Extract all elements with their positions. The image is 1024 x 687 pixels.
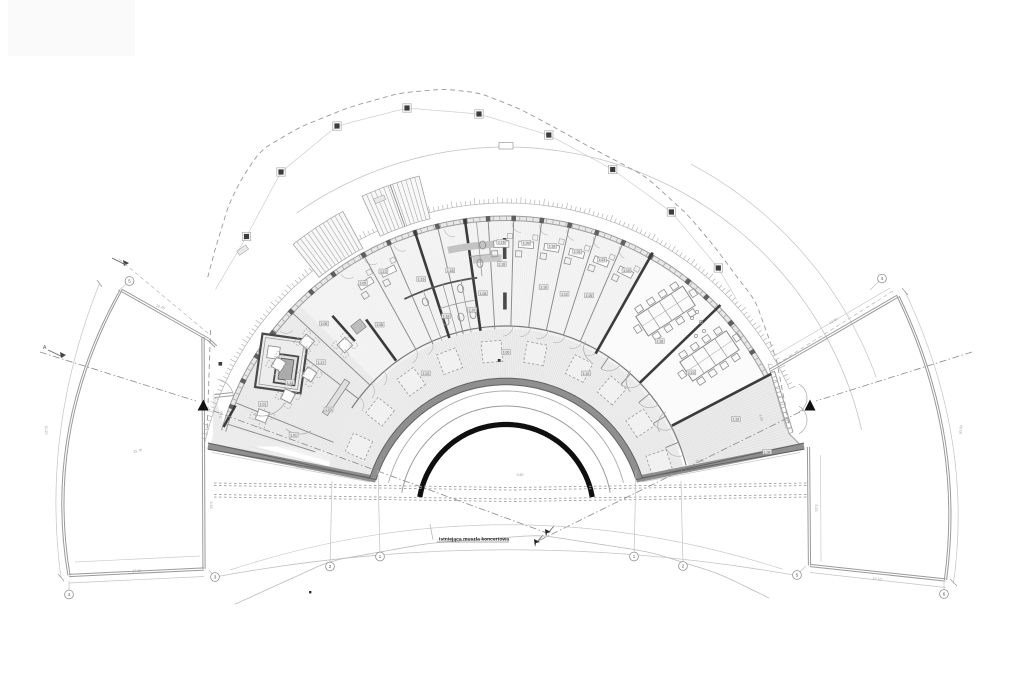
svg-text:1.16: 1.16 bbox=[498, 241, 505, 245]
svg-text:5.45: 5.45 bbox=[209, 502, 213, 509]
svg-text:1.18: 1.18 bbox=[447, 269, 454, 273]
svg-text:1.19: 1.19 bbox=[583, 372, 590, 376]
svg-text:1.05: 1.05 bbox=[360, 282, 367, 286]
svg-text:1.09: 1.09 bbox=[523, 241, 530, 245]
svg-text:1.03: 1.03 bbox=[599, 258, 606, 262]
svg-text:1.16: 1.16 bbox=[549, 245, 556, 249]
svg-text:1.01: 1.01 bbox=[290, 433, 297, 437]
svg-text:1.07: 1.07 bbox=[469, 308, 476, 312]
svg-text:istniejąca muszla koncertowa: istniejąca muszla koncertowa bbox=[439, 537, 509, 542]
svg-text:1.12: 1.12 bbox=[561, 292, 568, 296]
svg-text:A: A bbox=[43, 345, 47, 351]
svg-text:17.10: 17.10 bbox=[132, 569, 141, 573]
svg-text:1.19: 1.19 bbox=[623, 269, 630, 273]
svg-text:1.05: 1.05 bbox=[586, 294, 593, 298]
svg-text:1.13: 1.13 bbox=[380, 270, 387, 274]
svg-text:1.16: 1.16 bbox=[418, 278, 425, 282]
svg-text:1.13: 1.13 bbox=[287, 381, 294, 385]
svg-text:1.02: 1.02 bbox=[423, 372, 430, 376]
svg-text:1.05: 1.05 bbox=[321, 322, 328, 326]
svg-text:1.06: 1.06 bbox=[503, 351, 510, 355]
svg-text:1.18: 1.18 bbox=[443, 315, 450, 319]
svg-text:1.08: 1.08 bbox=[376, 323, 383, 327]
svg-text:1.16: 1.16 bbox=[540, 286, 547, 290]
svg-text:3.60: 3.60 bbox=[218, 411, 223, 419]
svg-text:30.20: 30.20 bbox=[44, 425, 48, 434]
svg-text:12.45: 12.45 bbox=[829, 317, 839, 325]
svg-text:15.70: 15.70 bbox=[133, 448, 143, 454]
svg-text:9.80: 9.80 bbox=[517, 473, 524, 477]
svg-text:1.17: 1.17 bbox=[318, 361, 325, 365]
svg-text:5.45: 5.45 bbox=[814, 505, 818, 512]
svg-text:1.03: 1.03 bbox=[325, 408, 332, 412]
svg-text:17.10: 17.10 bbox=[872, 577, 881, 582]
svg-text:30.20: 30.20 bbox=[959, 425, 964, 434]
svg-text:1.01: 1.01 bbox=[574, 250, 581, 254]
svg-text:1.01: 1.01 bbox=[260, 402, 267, 406]
svg-text:1.10: 1.10 bbox=[688, 371, 695, 375]
svg-text:21.35: 21.35 bbox=[295, 464, 305, 470]
svg-text:1.08: 1.08 bbox=[764, 450, 771, 454]
svg-text:1.19: 1.19 bbox=[733, 418, 740, 422]
svg-text:1.18: 1.18 bbox=[498, 263, 505, 267]
svg-text:1.18: 1.18 bbox=[657, 340, 664, 344]
svg-text:1.08: 1.08 bbox=[480, 292, 487, 296]
